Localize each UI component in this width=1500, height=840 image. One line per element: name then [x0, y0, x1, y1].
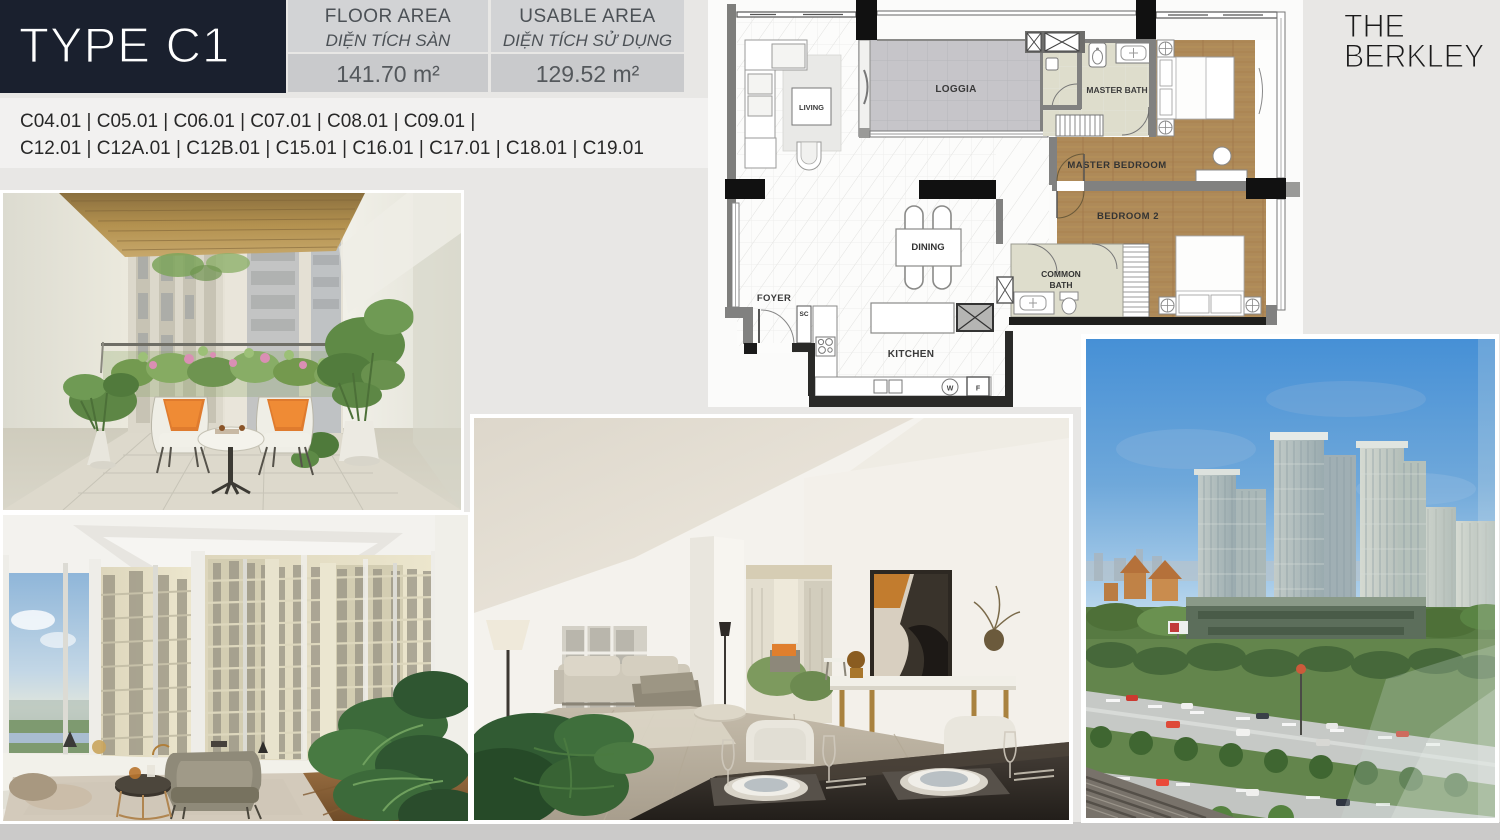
svg-text:MASTER BEDROOM: MASTER BEDROOM — [1067, 160, 1166, 171]
svg-text:LOGGIA: LOGGIA — [935, 84, 976, 95]
svg-text:W: W — [947, 386, 954, 393]
svg-text:DINING: DINING — [911, 242, 944, 253]
svg-text:LIVING: LIVING — [799, 103, 824, 112]
svg-text:COMMON: COMMON — [1041, 269, 1081, 279]
svg-text:FOYER: FOYER — [757, 293, 791, 304]
svg-text:BATH: BATH — [1050, 280, 1073, 290]
svg-text:MASTER BATH: MASTER BATH — [1086, 85, 1147, 95]
svg-text:SC: SC — [799, 311, 808, 318]
svg-text:KITCHEN: KITCHEN — [888, 349, 935, 360]
svg-text:F: F — [976, 386, 981, 393]
svg-text:BEDROOM 2: BEDROOM 2 — [1097, 211, 1159, 222]
